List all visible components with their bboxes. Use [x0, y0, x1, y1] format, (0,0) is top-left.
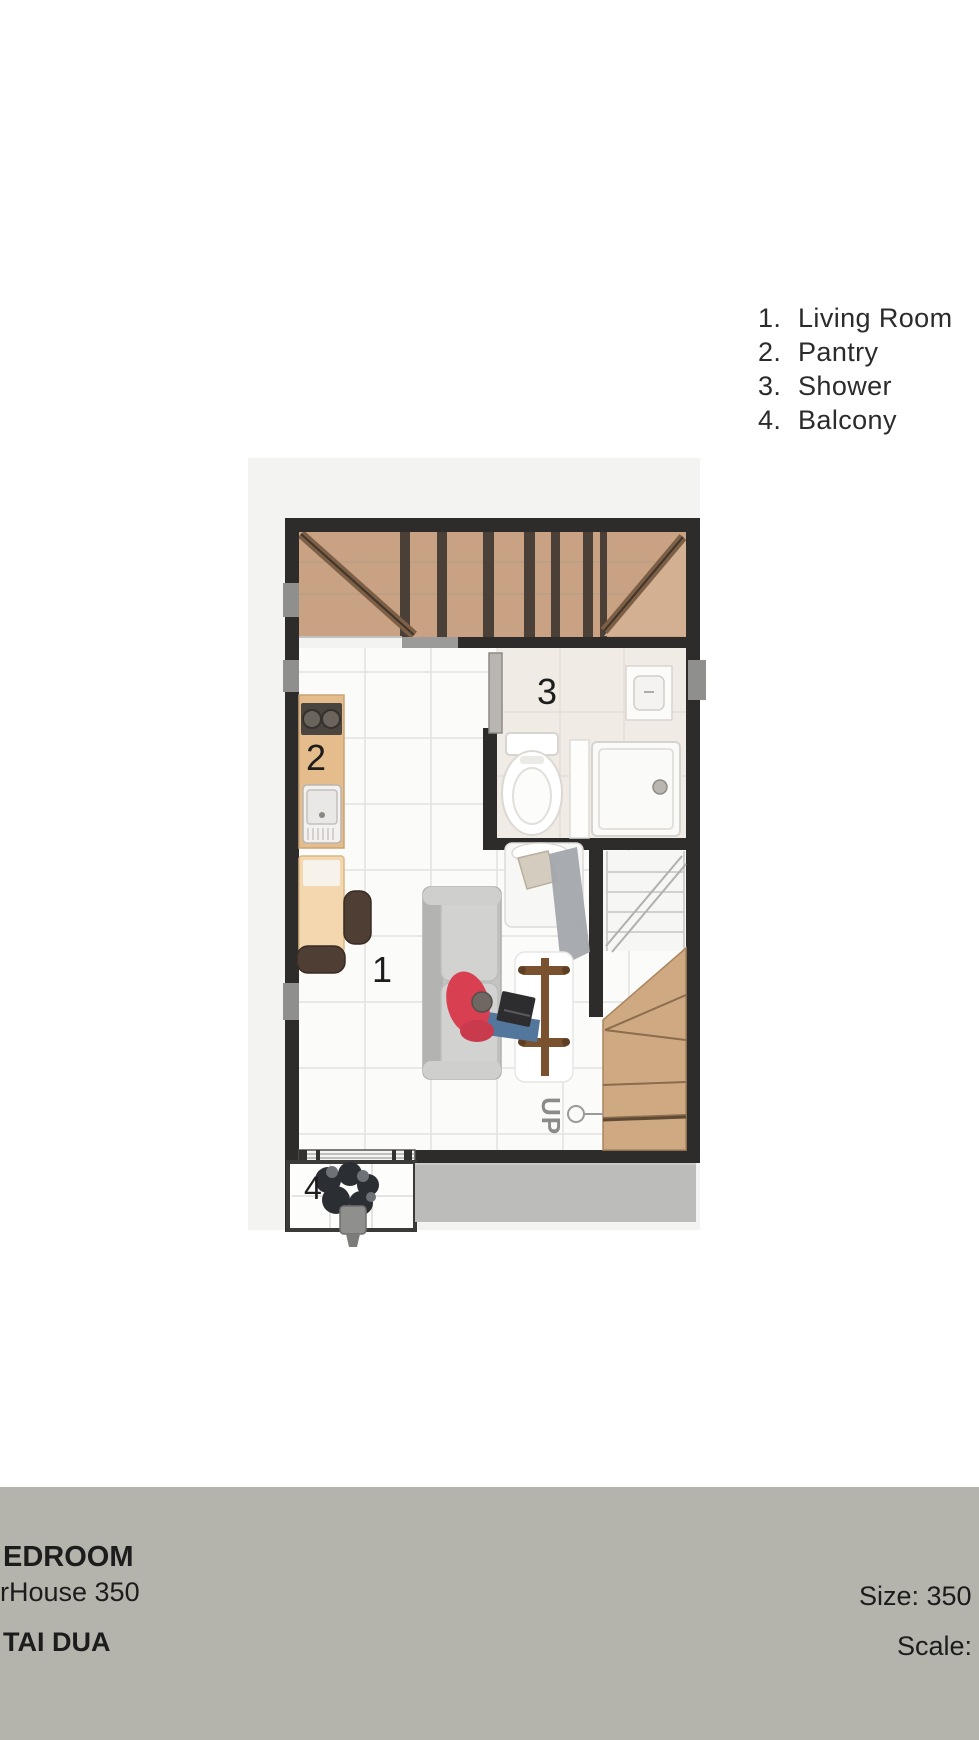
shower-drain-icon: [653, 780, 667, 794]
legend-label: Balcony: [798, 405, 897, 436]
room-legend: 1. Living Room 2. Pantry 3. Shower 4. Ba…: [758, 303, 952, 439]
window-left-upper: [283, 583, 299, 617]
room-label-balcony: 4: [304, 1172, 322, 1204]
legend-item-shower: 3. Shower: [758, 371, 952, 405]
chair-bottom: [297, 946, 345, 973]
room-label-shower: 3: [537, 674, 557, 710]
vanity-sink: [626, 666, 672, 720]
stair-opening: [402, 637, 458, 648]
unit-size: Size: 350 x: [859, 1581, 979, 1612]
chair-right: [344, 891, 371, 944]
floorplan-drawing: [230, 440, 710, 1260]
shower-tray: [592, 742, 680, 836]
floorplan-page: 1. Living Room 2. Pantry 3. Shower 4. Ba…: [0, 0, 979, 1740]
legend-label: Pantry: [798, 337, 878, 368]
unit-title: EDROOM: [3, 1541, 134, 1574]
toilet: [502, 733, 562, 835]
legend-number: 3.: [758, 371, 798, 402]
bathroom-cabinet: [570, 740, 589, 838]
legend-number: 4.: [758, 405, 798, 436]
legend-label: Shower: [798, 371, 892, 402]
legend-label: Living Room: [798, 303, 952, 334]
plant-icon: [315, 1162, 379, 1247]
stairs-upper-flight: [603, 851, 686, 952]
window-left-mid: [283, 660, 299, 692]
wall-stairband-bottom: [458, 637, 686, 648]
bathroom-door: [489, 653, 502, 733]
room-label-pantry: 2: [306, 740, 326, 776]
title-block-footer: EDROOM rHouse 350 TAI DUA Size: 350 x Sc…: [0, 1487, 979, 1740]
room-label-living-room: 1: [372, 952, 392, 988]
wall-right: [686, 518, 700, 1163]
unit-model: rHouse 350: [0, 1577, 140, 1608]
legend-item-living-room: 1. Living Room: [758, 303, 952, 337]
wall-stairwell: [589, 850, 603, 1017]
wall-top: [285, 518, 700, 532]
floor-name: TAI DUA: [3, 1627, 111, 1658]
window-right: [688, 660, 706, 700]
legend-number: 2.: [758, 337, 798, 368]
window-left-lower: [283, 983, 299, 1020]
legend-item-pantry: 2. Pantry: [758, 337, 952, 371]
wall-bathroom-left: [483, 728, 497, 850]
person-head: [472, 992, 492, 1012]
kitchen-sink-icon: [303, 785, 341, 843]
upper-stairs-void: [299, 532, 686, 637]
legend-item-balcony: 4. Balcony: [758, 405, 952, 439]
legend-number: 1.: [758, 303, 798, 334]
wall-left: [285, 518, 299, 1232]
drawing-scale: Scale:: [897, 1631, 972, 1662]
paving: [415, 1163, 696, 1222]
wall-bottom: [415, 1150, 700, 1163]
stairs-up-label: UP: [538, 1097, 564, 1135]
